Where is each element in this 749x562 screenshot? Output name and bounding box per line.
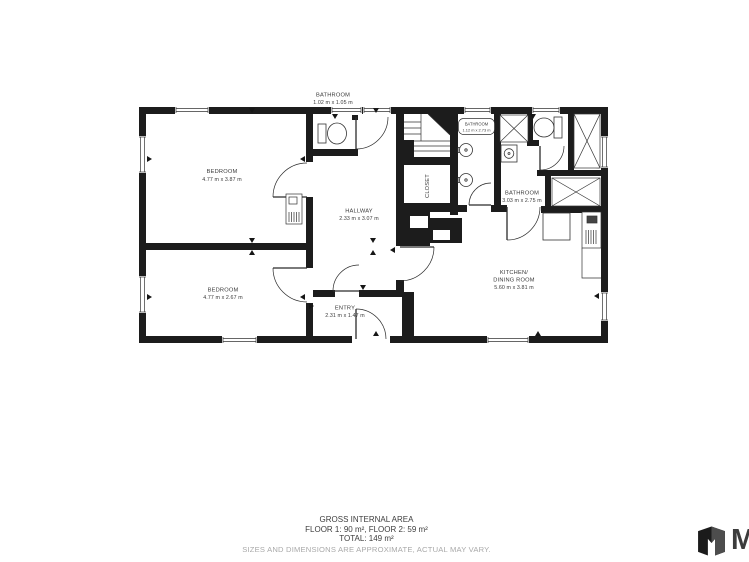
area-summary: GROSS INTERNAL AREA FLOOR 1: 90 m², FLOO… xyxy=(0,515,733,554)
door xyxy=(333,265,359,291)
sink-icon xyxy=(458,144,473,157)
toilet-icon xyxy=(318,123,347,144)
svg-text:HALLWAY: HALLWAY xyxy=(345,209,373,215)
room-label-bathroom-top: BATHROOM 1.02 m x 1.05 m xyxy=(313,93,353,107)
window xyxy=(532,106,560,115)
radiator-icon xyxy=(286,194,302,224)
window xyxy=(331,106,362,115)
room-label-bedroom-1: BEDROOM 4.77 m x 3.87 m xyxy=(202,169,242,183)
door xyxy=(469,183,491,205)
svg-text:BEDROOM: BEDROOM xyxy=(208,288,239,294)
window xyxy=(175,106,209,115)
room-label-entry: ENTRY 2.31 m x 1.47 m xyxy=(325,306,365,320)
room-label-bedroom-2: BEDROOM 4.77 m x 2.67 m xyxy=(203,288,243,302)
door xyxy=(273,163,307,197)
shower-icon xyxy=(552,178,600,206)
svg-text:2.33 m x 3.07 m: 2.33 m x 3.07 m xyxy=(339,216,379,222)
shower-icon xyxy=(574,114,600,168)
door xyxy=(507,207,540,240)
window xyxy=(600,136,609,168)
svg-text:ENTRY: ENTRY xyxy=(335,306,355,312)
floor-plan: BATHROOM 1.02 m x 1.05 m BEDROOM 4.77 m … xyxy=(0,0,749,562)
svg-text:1.02 m x 1.05 m: 1.02 m x 1.05 m xyxy=(313,100,353,106)
floor-plan-page: BATHROOM 1.02 m x 1.05 m BEDROOM 4.77 m … xyxy=(0,0,749,562)
fixtures xyxy=(286,114,601,278)
svg-text:1.12 m x 2.73 m: 1.12 m x 2.73 m xyxy=(463,128,491,133)
shower-icon xyxy=(500,115,528,142)
window xyxy=(222,335,257,344)
fridge-icon xyxy=(582,212,601,248)
door xyxy=(540,146,564,170)
toilet-icon xyxy=(534,117,562,138)
gross-internal-area-title: GROSS INTERNAL AREA xyxy=(0,515,733,525)
window xyxy=(138,276,147,313)
svg-text:CLOSET: CLOSET xyxy=(425,174,431,198)
sink-icon xyxy=(501,145,517,162)
svg-text:BATHROOM: BATHROOM xyxy=(505,191,539,197)
window xyxy=(487,335,529,344)
svg-text:3.03 m x 2.75 m: 3.03 m x 2.75 m xyxy=(502,198,542,204)
room-label-bathroom-small: BATHROOM 1.12 m x 2.73 m xyxy=(459,119,495,135)
room-label-kitchen-dining: KITCHEN/ DINING ROOM 5.60 m x 3.81 m xyxy=(493,270,534,291)
room-label-closet: CLOSET xyxy=(425,174,431,198)
door xyxy=(400,247,434,281)
svg-text:DINING ROOM: DINING ROOM xyxy=(493,278,534,284)
total-area: TOTAL: 149 m² xyxy=(0,534,733,544)
interior-walls xyxy=(146,114,601,336)
svg-text:BATHROOM: BATHROOM xyxy=(465,122,489,127)
room-label-hallway: HALLWAY 2.33 m x 3.07 m xyxy=(339,209,379,223)
svg-text:2.31 m x 1.47 m: 2.31 m x 1.47 m xyxy=(325,313,365,319)
logo-text: Ma xyxy=(731,521,749,560)
svg-text:4.77 m x 2.67 m: 4.77 m x 2.67 m xyxy=(203,295,243,301)
room-label-bathroom-3: BATHROOM 3.03 m x 2.75 m xyxy=(502,191,542,205)
door xyxy=(356,117,388,149)
counter-line xyxy=(582,248,601,278)
window xyxy=(600,292,609,321)
window xyxy=(464,106,491,115)
svg-text:BATHROOM: BATHROOM xyxy=(316,93,350,99)
matterport-logo-icon xyxy=(696,526,727,557)
svg-text:4.77 m x 3.87 m: 4.77 m x 3.87 m xyxy=(202,177,242,183)
floor-areas: FLOOR 1: 90 m², FLOOR 2: 59 m² xyxy=(0,525,733,535)
washer-icon xyxy=(543,213,570,240)
front-door-opening xyxy=(352,335,390,344)
window xyxy=(138,136,147,173)
svg-text:5.60 m x 3.81 m: 5.60 m x 3.81 m xyxy=(494,285,534,291)
svg-text:BEDROOM: BEDROOM xyxy=(207,169,238,175)
svg-text:KITCHEN/: KITCHEN/ xyxy=(500,270,528,276)
disclaimer: SIZES AND DIMENSIONS ARE APPROXIMATE, AC… xyxy=(0,545,733,554)
sink-icon xyxy=(458,174,473,187)
matterport-logo: Ma xyxy=(691,521,749,561)
